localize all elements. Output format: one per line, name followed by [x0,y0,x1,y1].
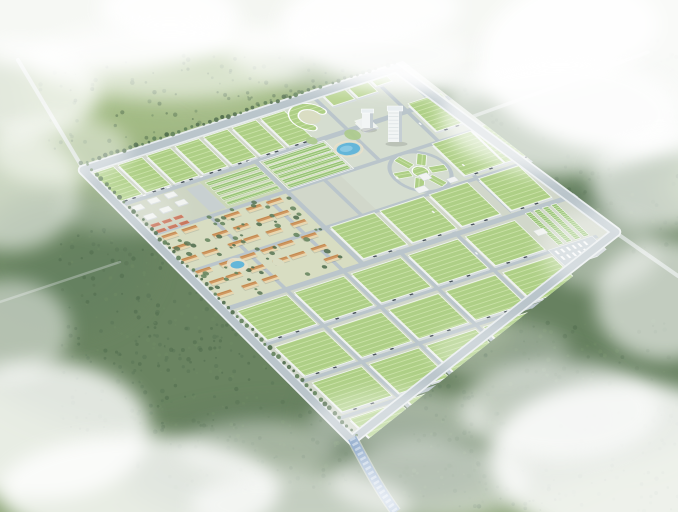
cloud [60,185,180,235]
aerial-rendering-image [0,0,678,512]
industrial-park-aerial-scene [0,0,678,512]
cloud [430,320,570,380]
cloud [540,210,660,290]
sky-fog-clouds [0,0,678,512]
cloud [310,390,490,450]
